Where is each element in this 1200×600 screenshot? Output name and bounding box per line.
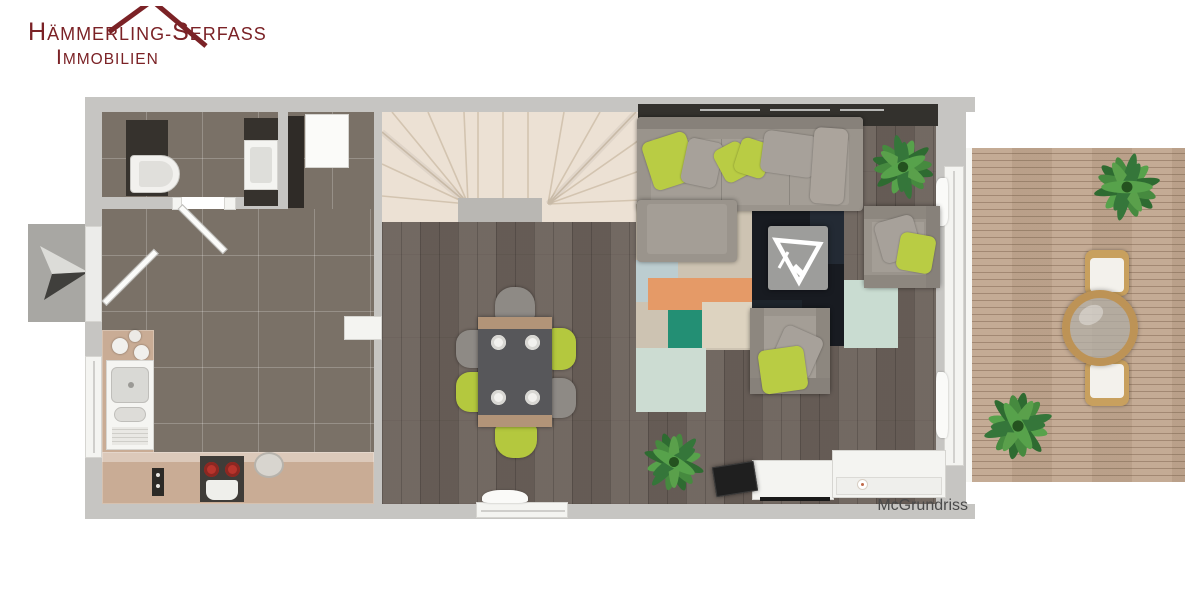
logo-text: MMOBILIEN [63,51,159,68]
toilet-bowl [139,161,173,187]
plate [525,390,540,405]
washbasin [244,140,278,190]
rug-patch-palemint [636,348,706,412]
logo-text: S [172,18,190,46]
plate [491,335,506,350]
flower-center [861,483,864,486]
knife-block [152,468,164,496]
sideboard-drawer [836,477,942,495]
rug-patch-teal [668,310,702,350]
chair-cushion [1090,364,1124,398]
armchair-pillow-green [757,345,809,395]
rug-patch-cream [702,302,754,348]
decor-flower-icon [857,479,868,490]
cooking-pot [134,345,149,360]
armchair-armrest [864,275,926,288]
vanity-counter [244,188,278,206]
window-glass-line [953,171,955,463]
decor-triangle-icon [768,226,828,290]
sideboard-shelf-edge [760,497,830,501]
logo-line2: IMMOBILIEN [56,50,159,69]
potted-plant-icon [866,130,940,204]
potted-plant-icon [1088,148,1166,226]
kitchen-bowl [254,452,284,478]
curtain [482,490,528,503]
tv-sideboard-right [832,450,946,498]
sofa-chaise [637,200,737,262]
wall-bathroom-right [278,112,288,209]
cooking-pot [129,330,141,342]
dining-window [476,502,568,518]
burner [204,462,219,477]
rug-patch-mint [844,280,898,348]
cooking-pot [112,338,128,354]
chaise-seat [647,204,727,254]
terrace-table [1062,290,1138,366]
wall-bathroom-bottom-a [102,197,180,209]
stair-treads [382,112,642,222]
plate [525,335,540,350]
hall-cabinet [288,116,304,208]
dining-chair-gray [550,378,576,418]
dining-table [478,317,552,427]
stove [200,456,244,502]
tv-sideboard-left [752,460,834,500]
hall-closet [305,114,349,168]
dining-chair-green [495,426,537,458]
agency-logo: HÄMMERLING-SERFASS IMMOBILIEN [20,8,280,78]
entrance-door-opening [85,226,102,322]
potted-plant-icon [638,426,710,498]
knife-dot [156,473,160,477]
glass-highlight [1075,301,1107,330]
toilet [130,155,180,193]
floor-plan-page: HÄMMERLING-SERFASS IMMOBILIEN [0,0,1200,600]
staircase [382,112,642,222]
wall-kitchen-divider [374,112,382,505]
chair-cushion [1090,258,1124,292]
plate [491,390,506,405]
vanity-counter [244,118,278,142]
logo-text: I [56,46,63,69]
dining-table-top [478,329,552,415]
sink-drainboard [112,427,148,445]
terrace-chair [1085,360,1129,406]
washbasin-bowl [250,147,272,183]
window-frame-glint [840,109,884,111]
sink-basin-small [114,407,146,422]
dining-chair-gray [495,287,535,319]
sofa-pillow-gray [759,129,818,178]
curtain [936,372,948,438]
potted-plant-icon [978,386,1058,466]
dining-chair-green [550,328,576,370]
logo-line1: HÄMMERLING-SERFASS [28,22,267,45]
window-frame-glint [700,109,760,111]
terrace-chair [1085,250,1129,296]
armchair-pillow-green [895,231,937,275]
logo-text: ÄMMERLING- [47,24,172,44]
sink-drain [128,382,134,388]
burner [225,462,240,477]
kitchen-sink-unit [106,360,154,450]
window-glass-line [481,510,565,512]
kitchen-doorway [344,316,382,340]
watermark: McGrundriss [856,497,968,515]
logo-text: ERFASS [190,24,267,44]
sofa-cushion [809,127,848,205]
bathroom-door-jamb [224,197,236,210]
oven-door [206,480,238,500]
window-frame-glint [770,109,830,111]
window-glass-line [93,361,95,453]
kitchen-window [85,356,102,458]
knife-dot [156,484,160,488]
logo-text: H [28,18,47,46]
coffee-table [768,226,828,290]
